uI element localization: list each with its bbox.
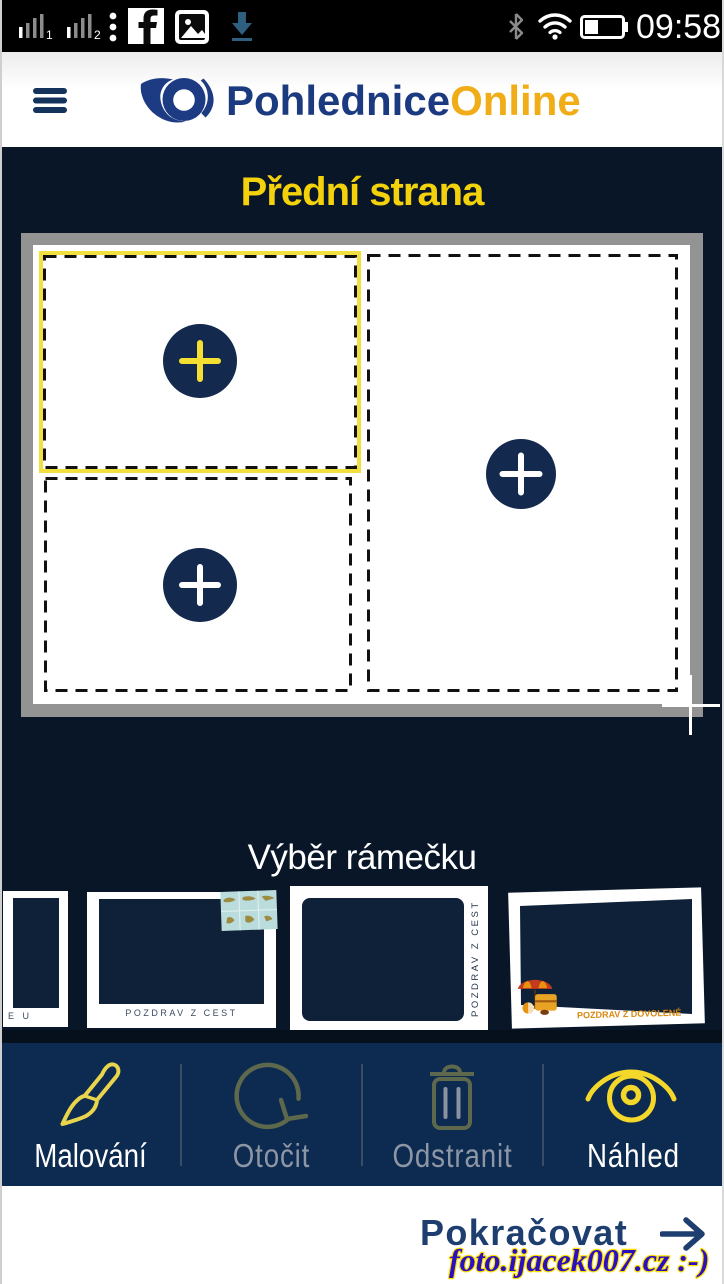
svg-text:1: 1 <box>46 28 53 40</box>
svg-text:foto.ijacek007.cz :-): foto.ijacek007.cz :-) <box>449 1242 709 1278</box>
svg-text:2: 2 <box>94 28 101 40</box>
